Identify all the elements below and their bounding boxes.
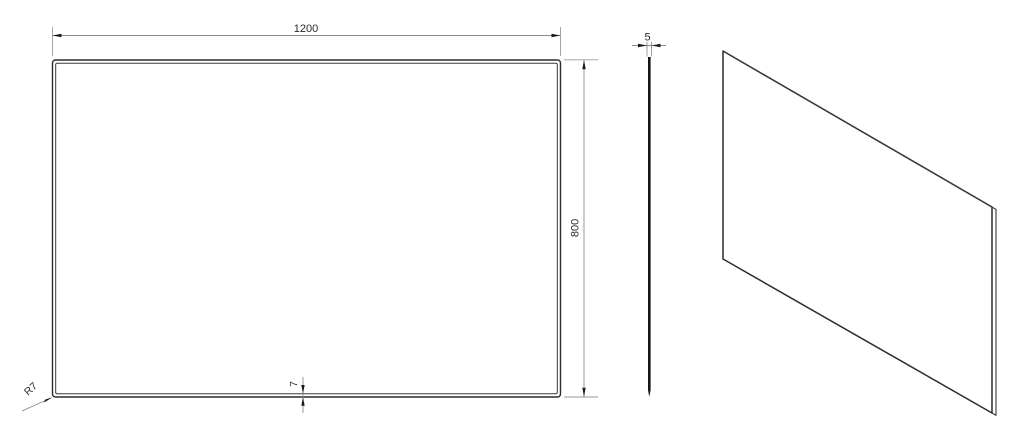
panel-front-face (723, 51, 992, 413)
dim-height-value: 800 (570, 219, 582, 237)
arrowhead-right-icon (552, 34, 561, 37)
leader-arrowhead-icon (44, 397, 53, 402)
panel-outer-outline (53, 60, 561, 397)
dim-width-value: 1200 (294, 23, 318, 35)
radius-callout: R7 (22, 380, 53, 411)
arrowhead-up-icon (301, 397, 304, 406)
cad-drawing-canvas: 1200 800 7 R7 (0, 0, 1024, 436)
arrowhead-up-icon (582, 60, 585, 69)
corner-radius-value: R7 (22, 380, 40, 398)
dim-height: 800 (564, 60, 598, 397)
dim-width: 1200 (53, 23, 561, 56)
arrowhead-left-icon (53, 34, 62, 37)
dim-bevel-value: 7 (288, 381, 300, 387)
dim-thickness: 5 (632, 32, 666, 57)
panel-thickness-edges (723, 51, 996, 415)
front-view (53, 60, 561, 397)
arrowhead-down-icon (301, 385, 304, 394)
arrowhead-left-icon (652, 44, 661, 47)
arrowhead-right-icon (638, 44, 647, 47)
panel-edge-profile (648, 57, 651, 397)
side-view: 5 (632, 32, 666, 398)
isometric-view (723, 51, 996, 415)
cad-drawing-sheet: 1200 800 7 R7 (0, 0, 1024, 436)
dim-thickness-value: 5 (644, 32, 650, 44)
panel-bevel-line (56, 63, 558, 394)
dim-bevel: 7 (288, 377, 305, 413)
arrowhead-down-icon (582, 388, 585, 397)
